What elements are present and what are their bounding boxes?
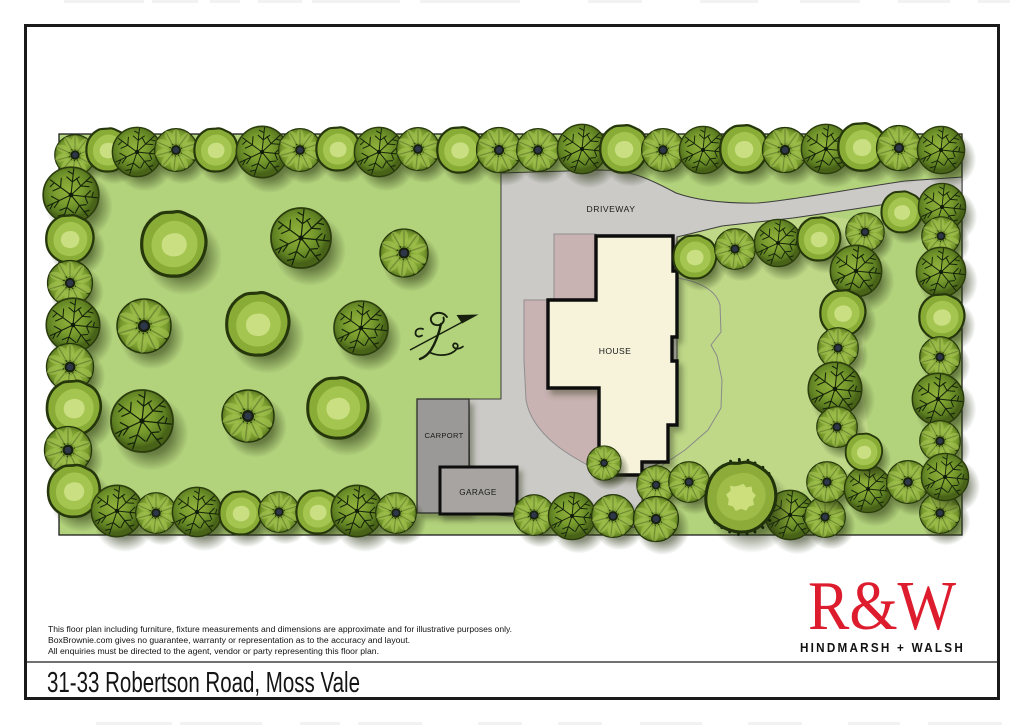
svg-text:All enquiries must be directed: All enquiries must be directed to the ag… bbox=[48, 646, 379, 656]
svg-text:BoxBrownie.com gives no guaran: BoxBrownie.com gives no guarantee, warra… bbox=[48, 635, 410, 645]
svg-text:HINDMARSH + WALSH: HINDMARSH + WALSH bbox=[800, 640, 965, 655]
svg-text:This floor plan including furn: This floor plan including furniture, fix… bbox=[48, 624, 512, 634]
svg-text:31-33 Robertson Road, Moss Val: 31-33 Robertson Road, Moss Vale bbox=[47, 667, 360, 699]
svg-text:HOUSE: HOUSE bbox=[599, 346, 632, 356]
svg-text:DRIVEWAY: DRIVEWAY bbox=[587, 204, 636, 214]
svg-text:CARPORT: CARPORT bbox=[424, 431, 463, 440]
svg-text:R&W: R&W bbox=[808, 568, 956, 645]
svg-text:GARAGE: GARAGE bbox=[459, 488, 497, 497]
